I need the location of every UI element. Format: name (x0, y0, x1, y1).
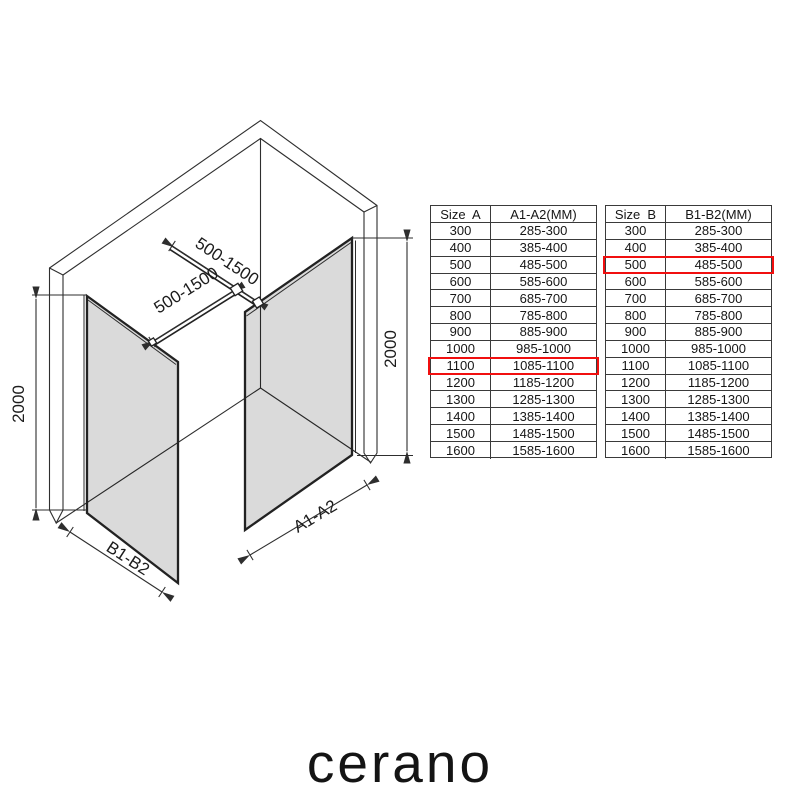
size-cell: 1100 (431, 358, 491, 374)
table-row: 1600 1585-1600 (606, 442, 771, 459)
range-cell: 1585-1600 (666, 442, 771, 459)
table-row: 1000 985-1000 (431, 341, 596, 358)
size-cell: 800 (431, 307, 491, 323)
table-b-body: 300 285-300 400 385-400 500 485-500 600 … (606, 223, 771, 459)
size-cell: 1200 (606, 375, 666, 391)
size-cell: 1300 (431, 391, 491, 407)
size-cell: 1000 (606, 341, 666, 357)
range-cell: 1285-1300 (491, 391, 596, 407)
table-row: 1600 1585-1600 (431, 442, 596, 459)
size-cell: 300 (606, 223, 666, 239)
size-cell: 800 (606, 307, 666, 323)
table-b-header-size: Size B (606, 206, 666, 222)
left-wall-end-cap-top (50, 268, 64, 275)
size-cell: 1100 (606, 358, 666, 374)
right-wall-end-cap-top (364, 206, 377, 213)
size-cell: 1500 (431, 425, 491, 441)
table-a-body: 300 285-300 400 385-400 500 485-500 600 … (431, 223, 596, 459)
table-row: 1100 1085-1100 (431, 358, 596, 375)
range-cell: 1485-1500 (666, 425, 771, 441)
size-cell: 900 (606, 324, 666, 340)
table-a-header-size: Size A (431, 206, 491, 222)
page: 500-1500 500-1500 2000 2000 B1-B2 A1-A2 … (0, 0, 800, 800)
table-row: 500 485-500 (606, 257, 771, 274)
range-cell: 1185-1200 (491, 375, 596, 391)
size-cell: 400 (431, 240, 491, 256)
table-row: 800 785-800 (606, 307, 771, 324)
range-cell: 985-1000 (666, 341, 771, 357)
size-cell: 1000 (431, 341, 491, 357)
table-a-header: Size A A1-A2(MM) (431, 206, 596, 223)
range-cell: 385-400 (491, 240, 596, 256)
table-row: 400 385-400 (606, 240, 771, 257)
right-wall-end-cap (364, 206, 377, 463)
support-bar-upper-wall-tick (169, 241, 176, 251)
table-row: 700 685-700 (431, 290, 596, 307)
panel-a-width-label: A1-A2 (290, 496, 340, 537)
size-cell: 1200 (431, 375, 491, 391)
size-cell: 1400 (606, 408, 666, 424)
size-cell: 1500 (606, 425, 666, 441)
table-row: 1100 1085-1100 (606, 358, 771, 375)
size-cell: 400 (606, 240, 666, 256)
range-cell: 1085-1100 (491, 358, 596, 374)
table-row: 300 285-300 (606, 223, 771, 240)
range-cell: 585-600 (491, 274, 596, 290)
table-row: 1200 1185-1200 (606, 375, 771, 392)
range-cell: 685-700 (491, 290, 596, 306)
size-table-a: Size A A1-A2(MM) 300 285-300 400 385-400… (430, 205, 597, 458)
table-row: 300 285-300 (431, 223, 596, 240)
size-cell: 700 (431, 290, 491, 306)
height-right-label: 2000 (381, 330, 400, 368)
table-row: 600 585-600 (431, 274, 596, 291)
range-cell: 1385-1400 (491, 408, 596, 424)
table-a-header-range: A1-A2(MM) (491, 206, 596, 222)
range-cell: 1085-1100 (666, 358, 771, 374)
left-wall-end-cap (50, 268, 64, 523)
table-row: 1200 1185-1200 (431, 375, 596, 392)
size-cell: 500 (606, 257, 666, 273)
size-cell: 600 (606, 274, 666, 290)
height-left-label: 2000 (9, 385, 28, 423)
table-row: 1400 1385-1400 (431, 408, 596, 425)
table-row: 600 585-600 (606, 274, 771, 291)
range-cell: 785-800 (491, 307, 596, 323)
range-cell: 1285-1300 (666, 391, 771, 407)
range-cell: 985-1000 (491, 341, 596, 357)
range-cell: 1585-1600 (491, 442, 596, 459)
size-cell: 1600 (606, 442, 666, 459)
size-cell: 700 (606, 290, 666, 306)
glass-panels (84, 238, 356, 583)
table-b-header: Size B B1-B2(MM) (606, 206, 771, 223)
table-row: 900 885-900 (606, 324, 771, 341)
table-row: 700 685-700 (606, 290, 771, 307)
table-b-header-range: B1-B2(MM) (666, 206, 771, 222)
table-row: 1400 1385-1400 (606, 408, 771, 425)
range-cell: 1385-1400 (666, 408, 771, 424)
range-cell: 485-500 (666, 257, 771, 273)
range-cell: 285-300 (666, 223, 771, 239)
range-cell: 885-900 (491, 324, 596, 340)
range-cell: 285-300 (491, 223, 596, 239)
range-cell: 685-700 (666, 290, 771, 306)
right-wall-top-inner-edge (261, 139, 365, 213)
table-row: 1300 1285-1300 (431, 391, 596, 408)
table-row: 900 885-900 (431, 324, 596, 341)
range-cell: 585-600 (666, 274, 771, 290)
size-cell: 1600 (431, 442, 491, 459)
range-cell: 1485-1500 (491, 425, 596, 441)
table-row: 400 385-400 (431, 240, 596, 257)
size-cell: 1400 (431, 408, 491, 424)
brand-logo: cerano (0, 731, 800, 795)
table-row: 1300 1285-1300 (606, 391, 771, 408)
size-cell: 1300 (606, 391, 666, 407)
range-cell: 885-900 (666, 324, 771, 340)
size-table-b: Size B B1-B2(MM) 300 285-300 400 385-400… (605, 205, 772, 458)
size-cell: 500 (431, 257, 491, 273)
height-dimension-left-extensions (32, 295, 87, 510)
range-cell: 385-400 (666, 240, 771, 256)
table-row: 800 785-800 (431, 307, 596, 324)
table-row: 1000 985-1000 (606, 341, 771, 358)
table-row: 1500 1485-1500 (606, 425, 771, 442)
range-cell: 485-500 (491, 257, 596, 273)
range-cell: 1185-1200 (666, 375, 771, 391)
size-cell: 300 (431, 223, 491, 239)
size-cell: 900 (431, 324, 491, 340)
size-cell: 600 (431, 274, 491, 290)
table-row: 1500 1485-1500 (431, 425, 596, 442)
range-cell: 785-800 (666, 307, 771, 323)
table-row: 500 485-500 (431, 257, 596, 274)
